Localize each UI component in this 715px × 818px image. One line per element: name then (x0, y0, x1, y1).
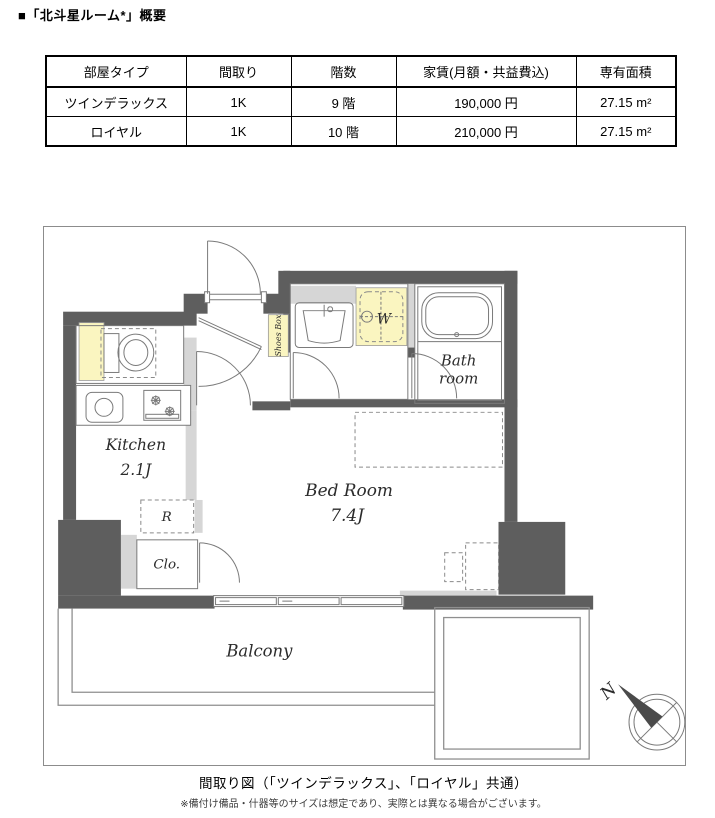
toilet-highlight (79, 323, 104, 381)
washroom-door (293, 353, 339, 399)
compass: N (595, 678, 685, 750)
refrigerator-label: R (161, 510, 172, 525)
floorplan-drawing: N Kitchen 2.1J Bed Room 7.4J Bath room B… (44, 227, 685, 765)
shoes-box-label: Shoes Box (274, 314, 283, 356)
washer-label: W (377, 312, 393, 328)
cell-rent: 210,000 円 (396, 117, 576, 147)
entrance-door (205, 241, 267, 303)
cell-area: 27.15 m² (576, 87, 676, 117)
header-area: 専有面積 (576, 56, 676, 87)
plan-footnote: ※備付け備品・什器等のサイズは想定であり、実際とは異なる場合がございます。 (43, 795, 684, 810)
plan-caption: 間取り図（「ツインデラックス」、「ロイヤル」共通） (43, 772, 684, 792)
balcony-label: Balcony (225, 641, 293, 660)
header-room-type: 部屋タイプ (46, 56, 186, 87)
bedroom-window (214, 596, 404, 607)
cell-room-type: ツインデラックス (46, 87, 186, 117)
closet-label: Clo. (153, 558, 180, 573)
kitchen-label: Kitchen (105, 436, 166, 454)
cell-layout: 1K (186, 87, 291, 117)
table-row: ツインデラックス 1K 9 階 190,000 円 27.15 m² (46, 87, 676, 117)
toilet-icon (101, 329, 156, 378)
header-layout: 間取り (186, 56, 291, 87)
cell-floor: 10 階 (291, 117, 396, 147)
table-header-row: 部屋タイプ 間取り 階数 家賃(月額・共益費込) 専有面積 (46, 56, 676, 87)
bedroom-label: Bed Room (304, 480, 393, 500)
room-spec-table: 部屋タイプ 間取り 階数 家賃(月額・共益費込) 専有面積 ツインデラックス 1… (45, 55, 677, 147)
floorplan-frame: N Kitchen 2.1J Bed Room 7.4J Bath room B… (43, 226, 686, 766)
wash-basin-icon (295, 303, 353, 348)
cell-area: 27.15 m² (576, 117, 676, 147)
cell-floor: 9 階 (291, 87, 396, 117)
balcony-outline (58, 608, 589, 759)
cell-rent: 190,000 円 (396, 87, 576, 117)
desk-outline (466, 543, 499, 590)
closet-door (200, 543, 240, 583)
compass-north-label: N (595, 678, 621, 704)
bedroom-size-label: 7.4J (330, 505, 365, 525)
bed-outline (355, 412, 502, 467)
bathtub-icon (418, 293, 502, 342)
cell-room-type: ロイヤル (46, 117, 186, 147)
toilet-door (199, 318, 262, 387)
header-floor: 階数 (291, 56, 396, 87)
bathroom-label-line2: room (439, 369, 478, 387)
table-row: ロイヤル 1K 10 階 210,000 円 27.15 m² (46, 117, 676, 147)
header-rent: 家賃(月額・共益費込) (396, 56, 576, 87)
kitchen-counter (76, 385, 191, 425)
hall-door (197, 352, 251, 406)
compass-needle (618, 684, 662, 728)
bathroom-label-line1: Bath (440, 351, 477, 369)
cell-layout: 1K (186, 117, 291, 147)
page-title: ■「北斗星ルーム*」概要 (18, 5, 167, 24)
kitchen-size-label: 2.1J (119, 461, 152, 479)
chair-outline (445, 553, 463, 582)
